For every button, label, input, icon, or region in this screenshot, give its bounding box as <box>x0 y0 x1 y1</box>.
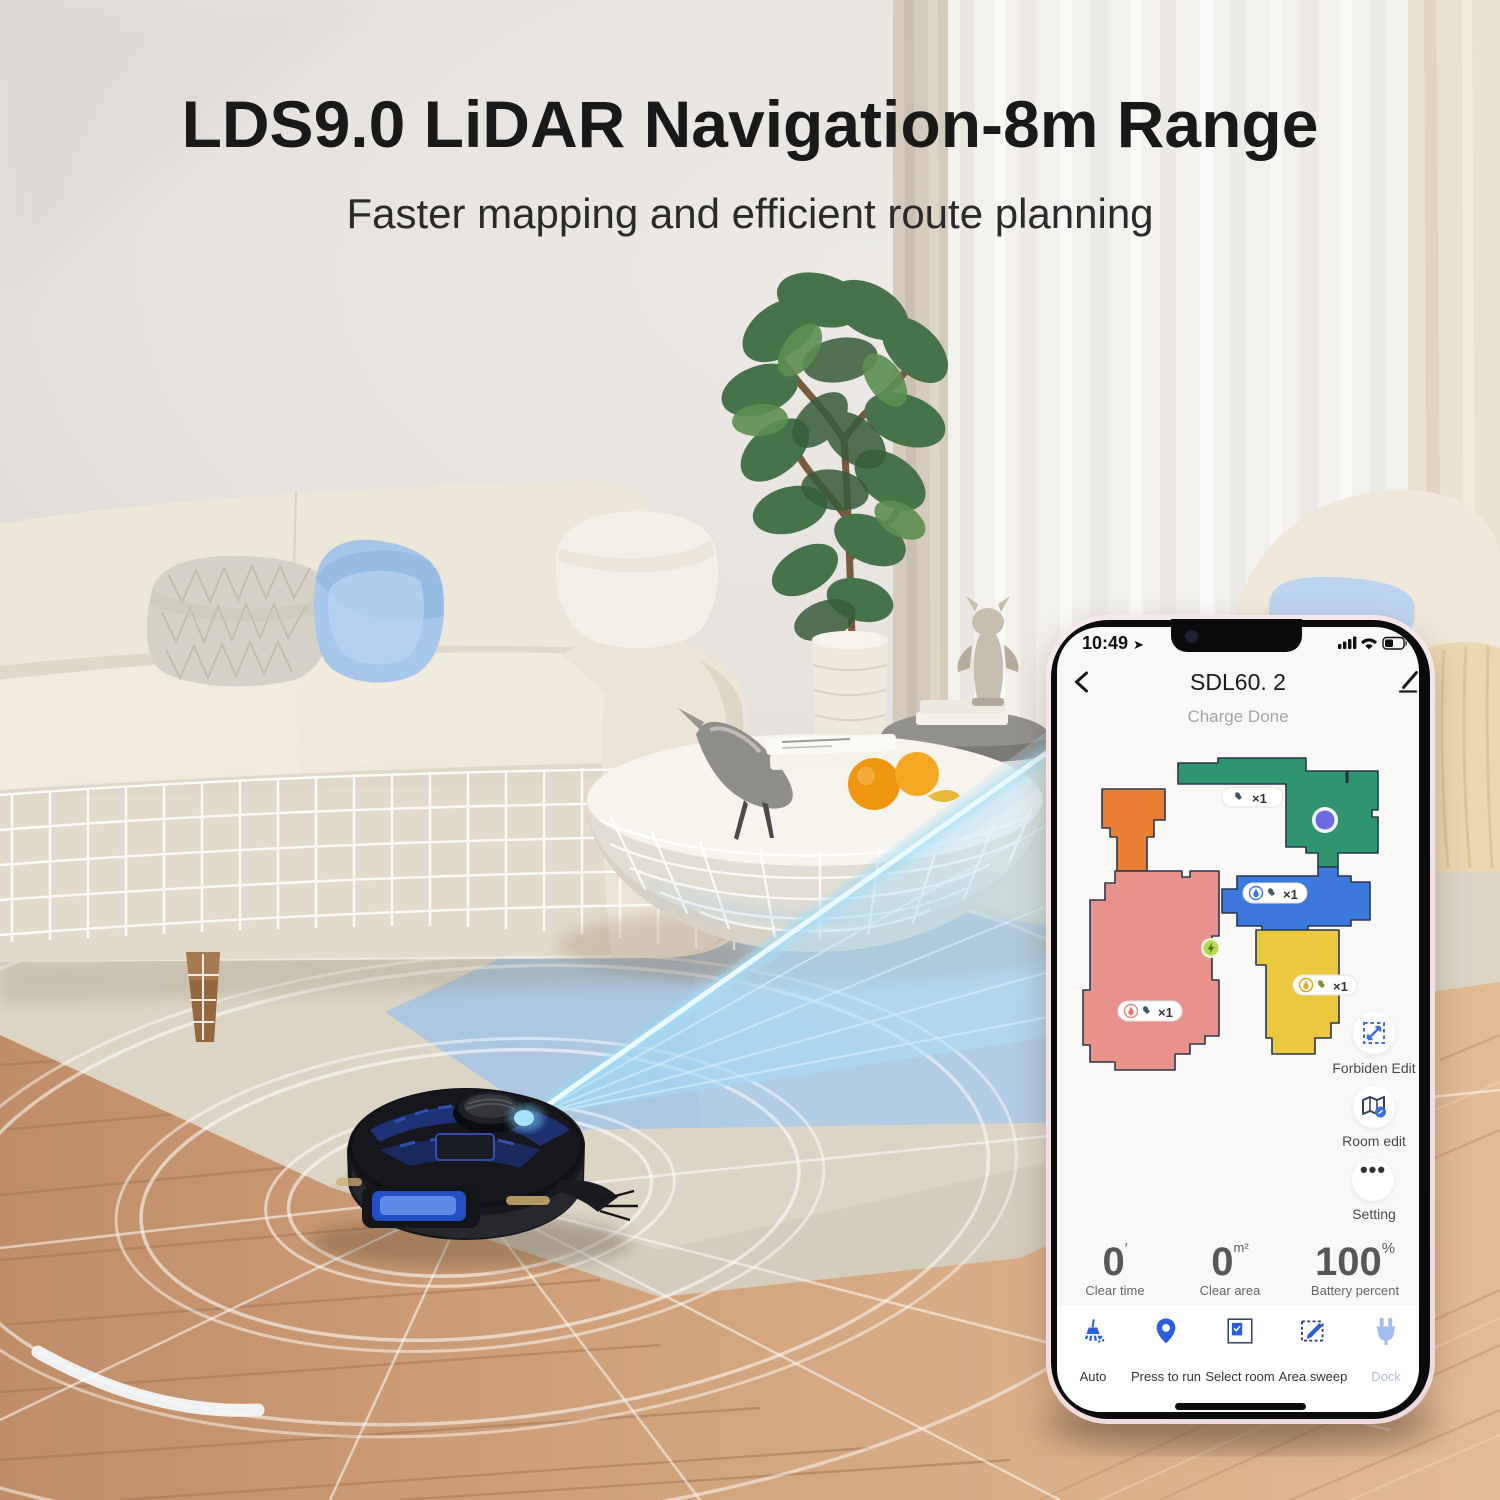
svg-text:×1: ×1 <box>1252 791 1267 806</box>
svg-text:×1: ×1 <box>1158 1005 1173 1020</box>
svg-text:×1: ×1 <box>1333 979 1348 994</box>
svg-text:×1: ×1 <box>1283 887 1298 902</box>
